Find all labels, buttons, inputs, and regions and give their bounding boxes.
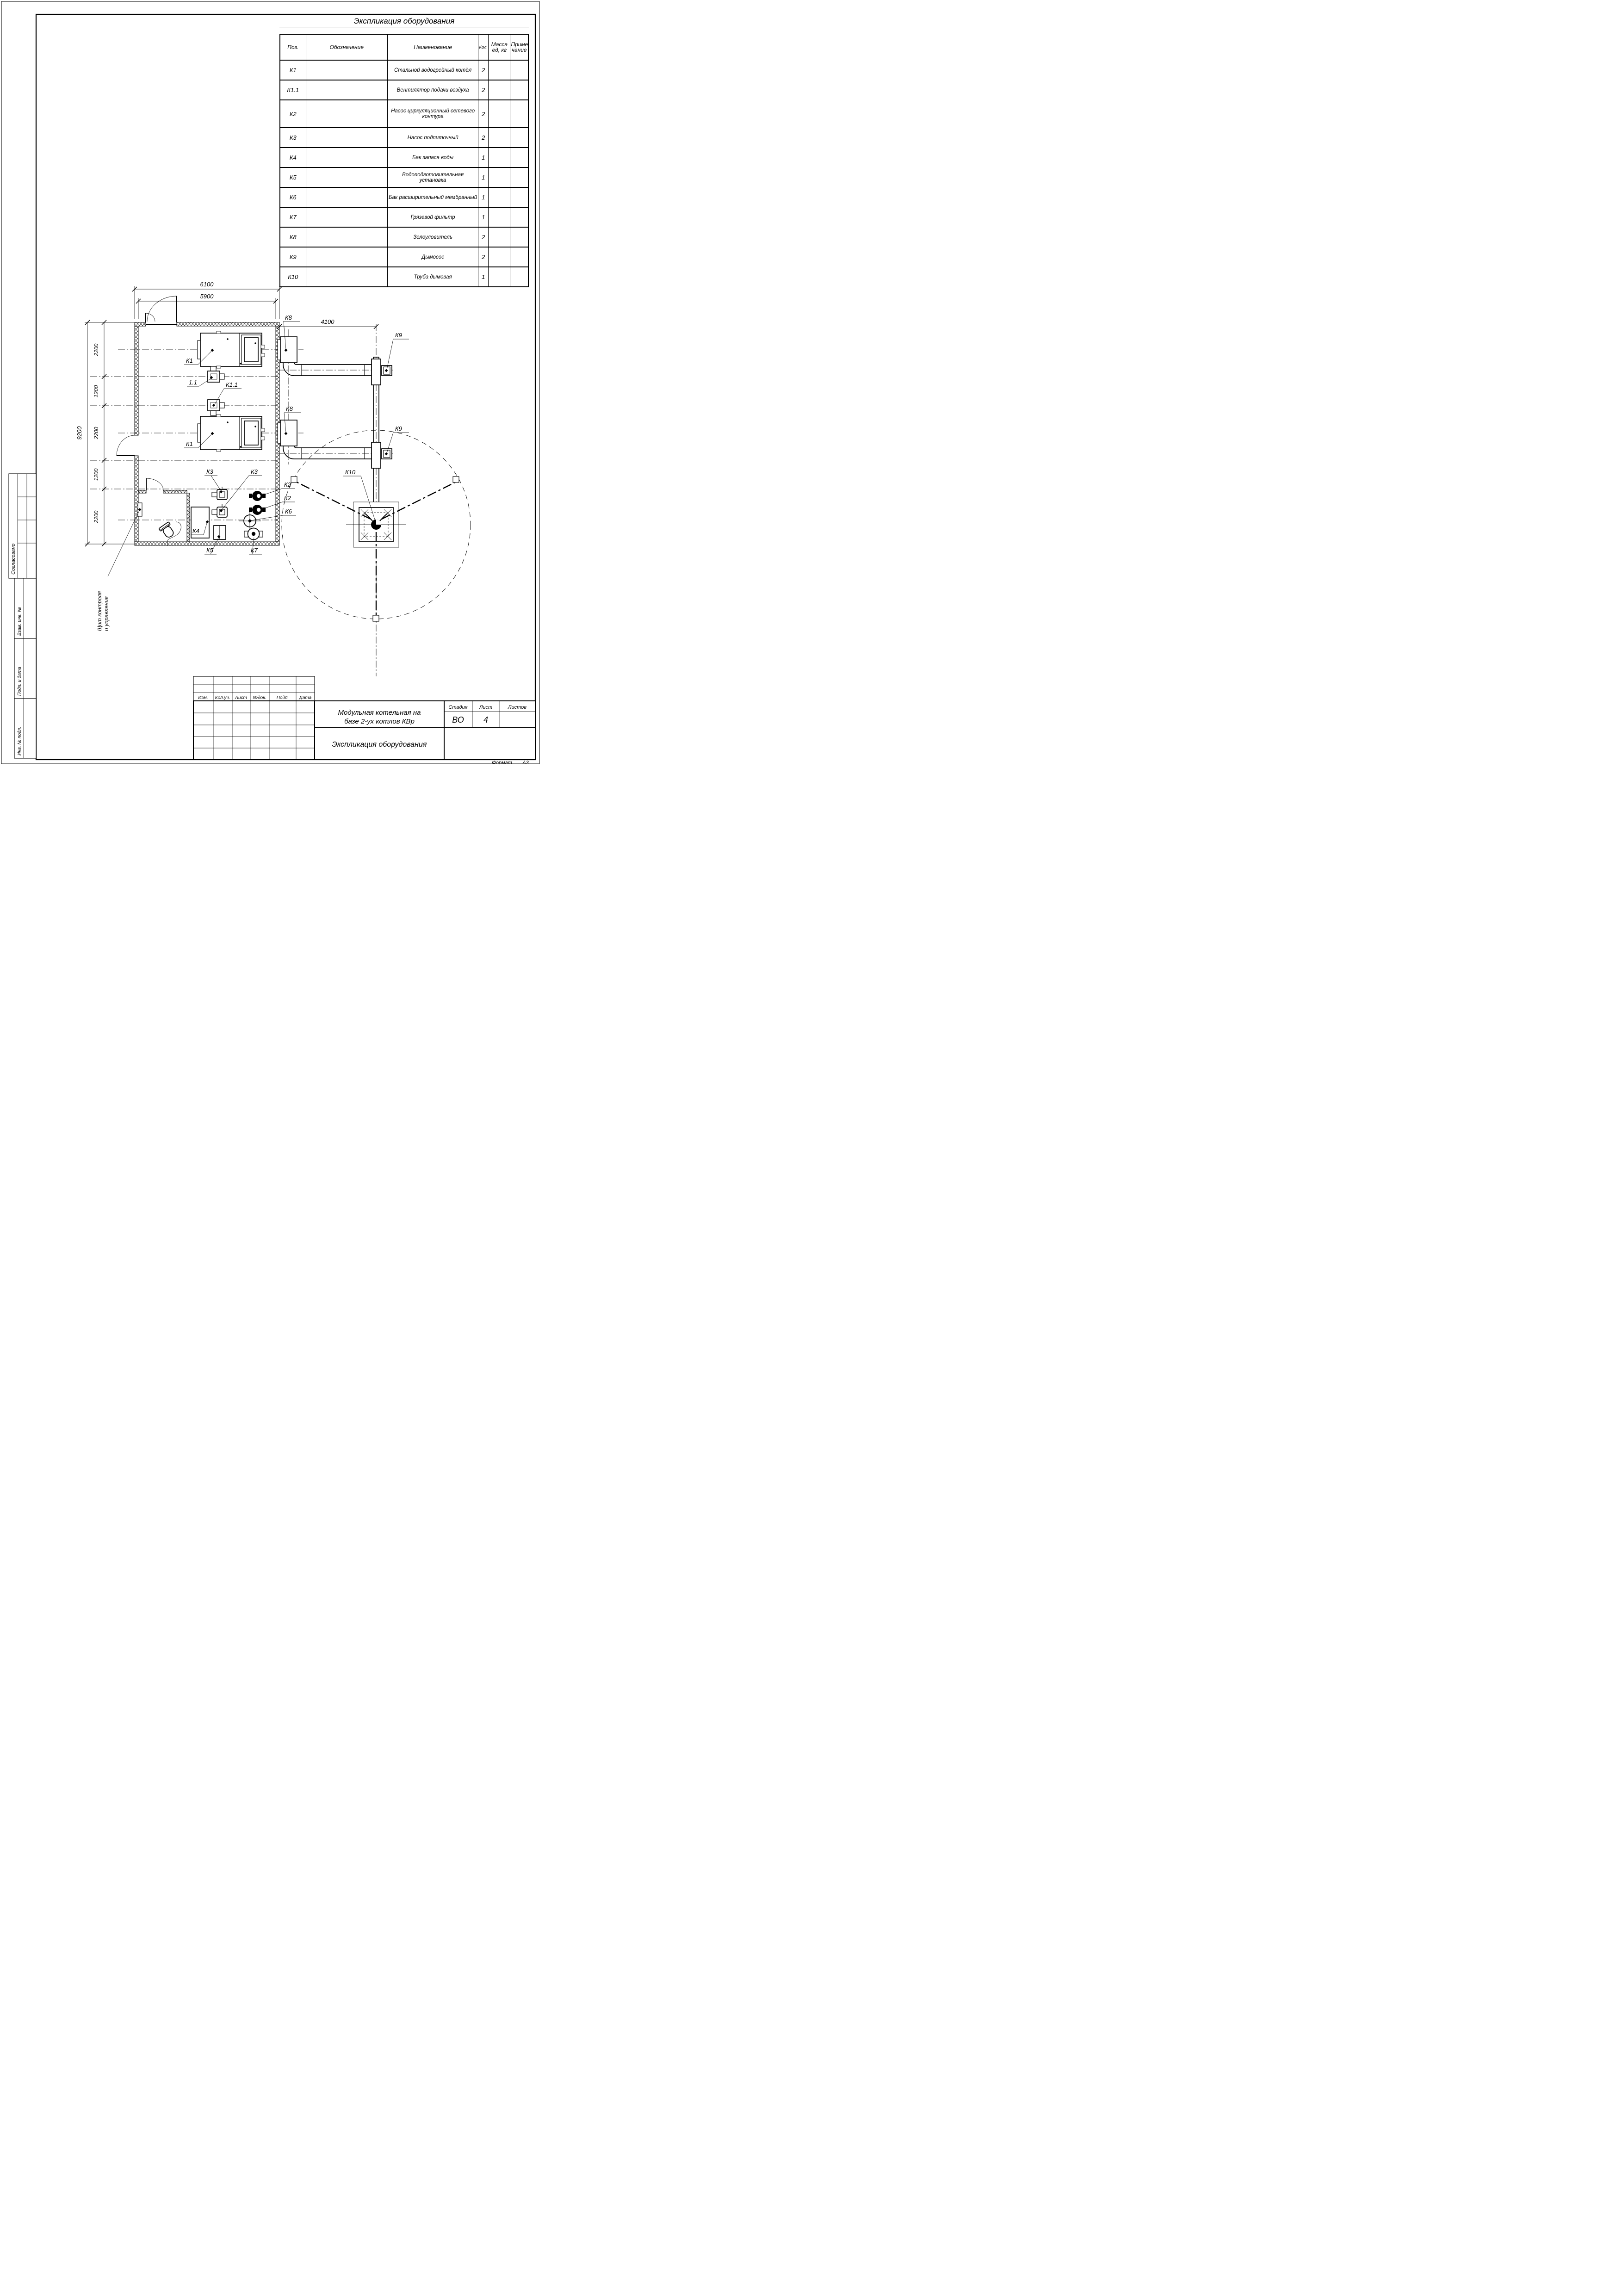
guy-anchor-left (291, 477, 297, 483)
tb-stage-value: ВО (452, 715, 464, 724)
label-mud-filter: К7 (251, 547, 258, 554)
boiler-1 (198, 331, 265, 368)
ash-catcher-1 (278, 337, 297, 363)
service-room-door (146, 478, 163, 490)
air-fan-1 (208, 366, 224, 382)
col-qty: Кол. (478, 34, 489, 60)
label-pump-makeup-b: К3 (251, 468, 258, 475)
sidebar-label-sign-date: Подп. и дата (17, 667, 22, 696)
label-water-tank: К4 (192, 527, 199, 534)
control-panel (138, 503, 142, 516)
label-panel-line1: Щит контроля (96, 591, 103, 631)
tb-stage-label: Стадия (448, 705, 467, 710)
table-row: К9Дымосос2 (280, 247, 528, 267)
network-pump-k2-b (249, 505, 266, 515)
sidebar-label-replace-inv: Взам. инв. № (17, 607, 22, 636)
smoke-exhauster-1 (382, 365, 392, 376)
tb-doc-name: Экспликация оборудования (332, 741, 427, 749)
label-exhauster-bottom: К9 (395, 425, 402, 432)
dim-9200: 9200 (76, 426, 83, 440)
col-note: Приме- чание (510, 34, 528, 60)
water-treatment-k5 (214, 526, 226, 539)
label-pump-net-b: К2 (284, 495, 291, 501)
dim-seg-3: 2200 (93, 427, 99, 439)
dim-6100: 6100 (200, 281, 214, 288)
tb-rev-izm: Изм. (198, 695, 208, 700)
format-value: А3 (522, 760, 529, 765)
mud-filter-k7 (244, 528, 263, 540)
label-boiler-top: К1 (186, 357, 193, 364)
label-pump-makeup-a: К3 (206, 468, 214, 475)
ash-catcher-2 (278, 420, 297, 446)
table-row: К10Труба дымовая1 (280, 267, 528, 287)
table-row: К7Грязевой фильтр1 (280, 207, 528, 227)
dim-4100: 4100 (321, 318, 335, 325)
col-name: Наименование (387, 34, 478, 60)
smoke-exhauster-2 (382, 449, 392, 459)
tb-rev-data: Дата (299, 695, 312, 700)
toilet (159, 522, 176, 540)
dim-seg-5: 2200 (93, 510, 99, 523)
table-row: К3Насос подпиточный2 (280, 128, 528, 148)
col-mass: Масса ед, кг (489, 34, 510, 60)
dim-seg-4: 1200 (93, 468, 99, 481)
label-pump-net-a: К2 (284, 481, 291, 488)
label-fan-top: 1.1 (189, 379, 197, 386)
tb-rev-kol: Кол.уч. (215, 695, 230, 700)
entrance-door (146, 296, 177, 324)
table-row: К2Насос циркуляционный сетевого контура2 (280, 100, 528, 128)
tb-sheet-value: 4 (483, 715, 488, 724)
sidebar-stamps: Согласовано Взам. инв. № Подп. и дата Ин… (9, 474, 36, 758)
equipment-specification: Экспликация оборудования Поз. Обозначени… (279, 17, 529, 287)
table-row: К5Водоподготовительная установка1 (280, 167, 528, 187)
sidebar-label-inv-num: Инв. № подл. (17, 727, 22, 755)
tb-rev-podp: Подп. (277, 695, 289, 700)
tb-rev-list: Лист (235, 695, 247, 700)
tb-project-title-2: базе 2-ух котлов КВр (344, 718, 415, 725)
tb-sheets-label: Листов (508, 705, 527, 710)
label-fan-bottom: К1.1 (226, 381, 238, 388)
label-ash-top: К8 (285, 314, 292, 321)
tb-sheet-label: Лист (479, 705, 492, 710)
format-label: Формат (492, 760, 512, 765)
table-row: К1Стальной водогрейный котёл2 (280, 60, 528, 80)
dimensions: 6100 5900 4100 9200 2200 1200 2200 1200 … (76, 281, 378, 546)
side-door (117, 435, 135, 456)
label-chimney: К10 (345, 469, 356, 476)
guy-anchor-right (453, 477, 459, 483)
equipment-table: Поз. Обозначение Наименование Кол. Масса… (279, 34, 529, 287)
col-designation: Обозначение (306, 34, 387, 60)
dim-seg-1: 2200 (93, 343, 99, 356)
tb-rev-ndok: №док. (253, 695, 266, 700)
boiler-2 (198, 415, 265, 452)
drawing-sheet: Согласовано Взам. инв. № Подп. и дата Ин… (0, 0, 541, 765)
guy-anchor-bottom (373, 615, 379, 621)
label-exhauster-top: К9 (395, 332, 402, 339)
table-row: К8Золоуловитель2 (280, 227, 528, 247)
equipment-table-title: Экспликация оборудования (279, 17, 529, 27)
title-block: Изм. Кол.уч. Лист №док. Подп. Дата Модул… (193, 676, 535, 765)
dim-5900: 5900 (200, 293, 214, 300)
label-panel-line2: и управления (103, 596, 110, 631)
label-boiler-bottom: К1 (186, 440, 193, 447)
tb-project-title-1: Модульная котельная на (338, 709, 421, 717)
table-row: К4Бак запаса воды1 (280, 148, 528, 167)
flue-duct-2 (283, 446, 373, 459)
makeup-pump-k3-b (212, 504, 227, 517)
col-pos: Поз. (280, 34, 306, 60)
label-exp-tank: К6 (285, 508, 292, 515)
table-header-row: Поз. Обозначение Наименование Кол. Масса… (280, 34, 528, 60)
table-row: К6Бак расширительный мембранный1 (280, 187, 528, 207)
network-pump-k2-a (249, 491, 266, 501)
sidebar-label-agreed: Согласовано (11, 544, 16, 575)
label-ash-bottom: К8 (286, 405, 293, 412)
dim-seg-2: 1200 (93, 385, 99, 397)
table-row: К1.1Вентилятор подачи воздуха2 (280, 80, 528, 100)
flue-duct-1 (283, 363, 373, 376)
